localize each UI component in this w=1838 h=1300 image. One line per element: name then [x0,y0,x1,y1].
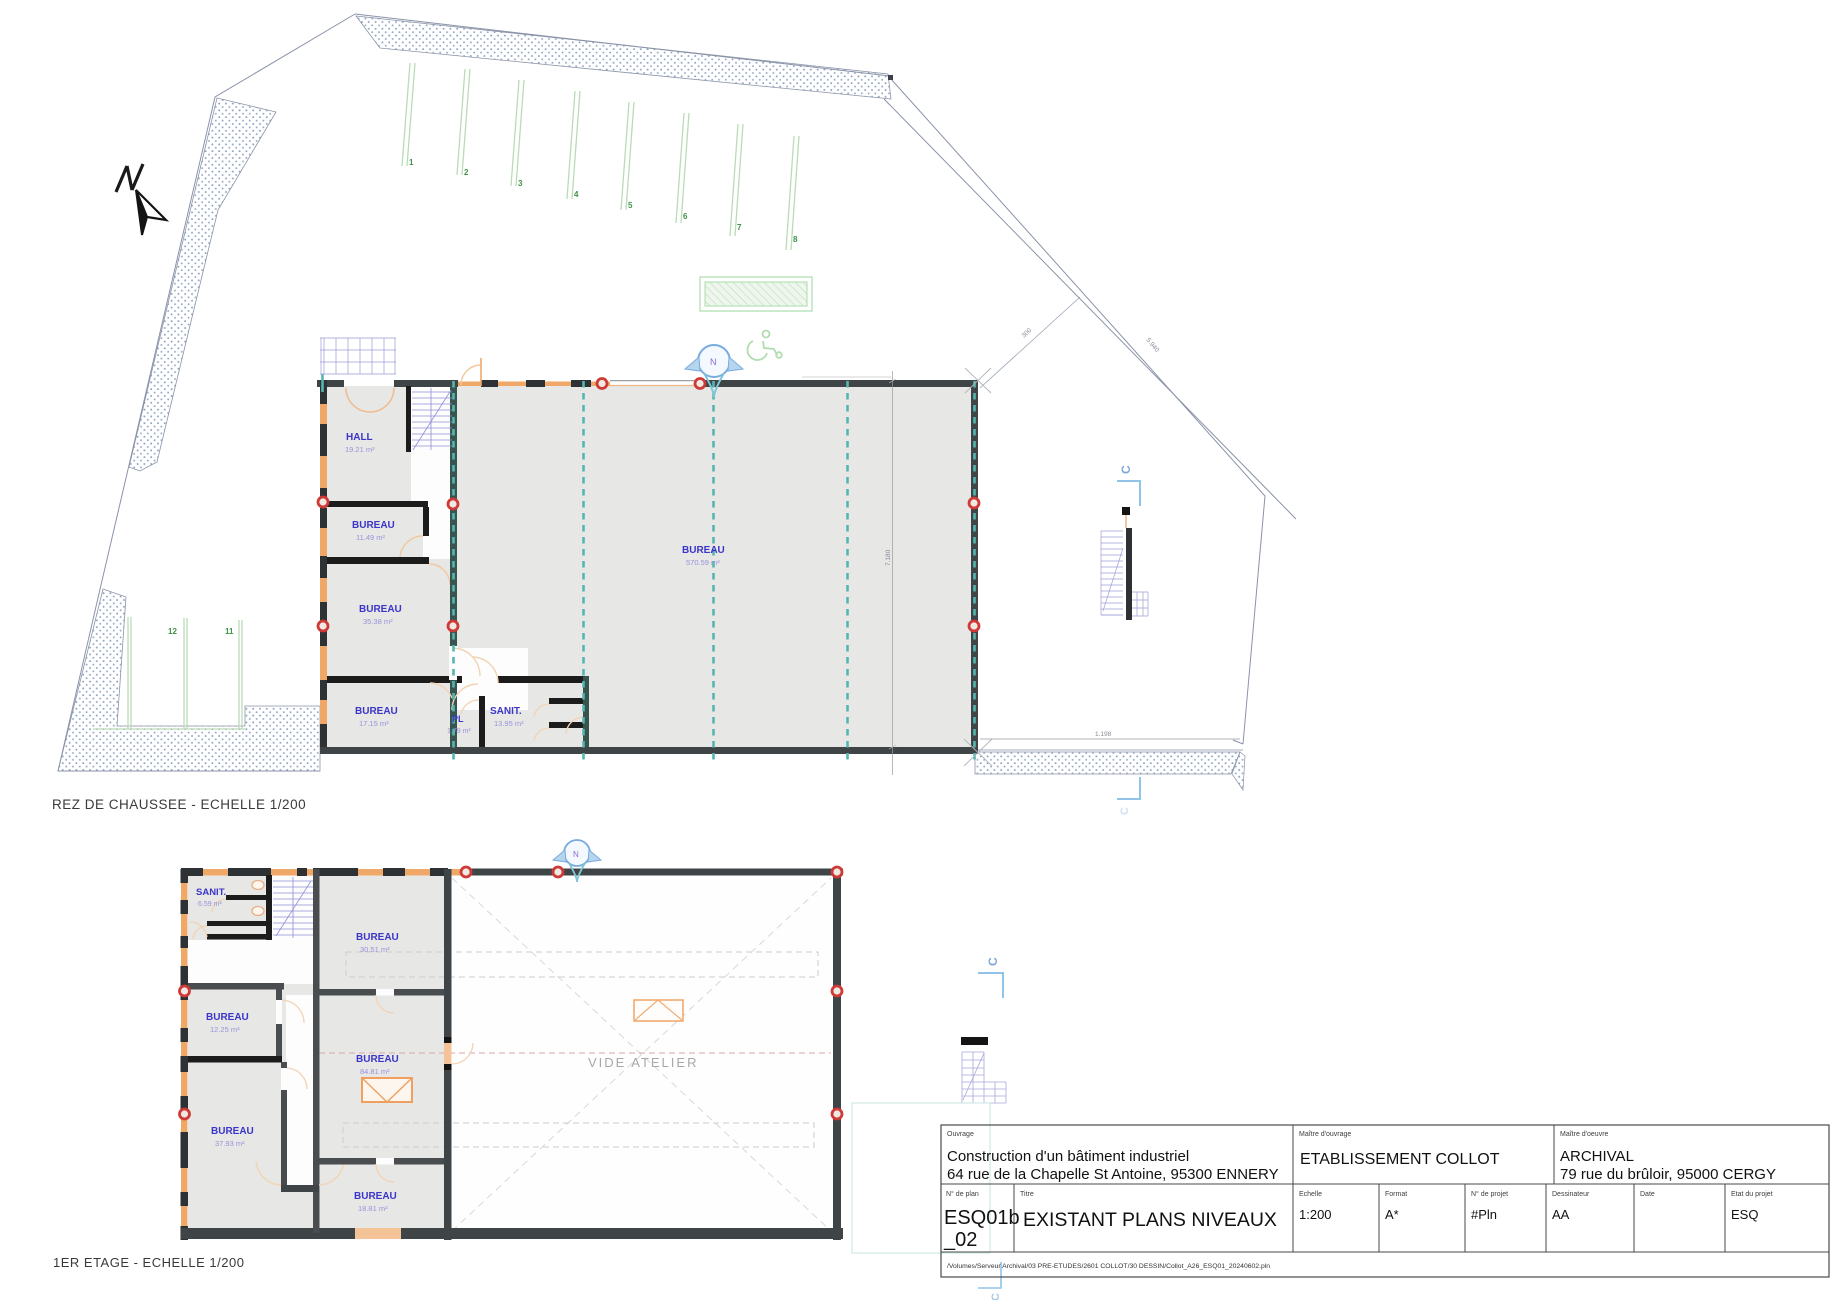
svg-text:17.15 m²: 17.15 m² [359,719,389,728]
svg-text:5.940: 5.940 [1144,337,1160,354]
svg-text:ESQ: ESQ [1731,1207,1758,1222]
svg-text:SANIT.: SANIT. [196,887,226,898]
svg-text:EXISTANT PLANS NIVEAUX: EXISTANT PLANS NIVEAUX [1023,1209,1277,1231]
svg-text:5: 5 [628,201,633,210]
svg-text:N° de plan: N° de plan [946,1190,979,1198]
svg-text:13.95 m²: 13.95 m² [494,719,524,728]
svg-text:6: 6 [683,212,688,221]
svg-text:BUREAU: BUREAU [682,545,725,556]
svg-text:#Pln: #Pln [1471,1207,1497,1222]
svg-text:BUREAU: BUREAU [359,604,402,615]
svg-text:BUREAU: BUREAU [206,1012,249,1023]
svg-text:30.51 m²: 30.51 m² [360,945,390,954]
svg-text:1.198: 1.198 [1095,731,1112,738]
svg-text:C: C [1119,807,1131,815]
svg-text:BUREAU: BUREAU [356,932,399,943]
svg-text:Maître d'ouvrage: Maître d'ouvrage [1299,1131,1351,1138]
svg-text:PL: PL [452,714,464,724]
svg-text:Echelle: Echelle [1299,1191,1322,1198]
svg-text:AA: AA [1552,1207,1570,1222]
svg-text:Etat du projet: Etat du projet [1731,1191,1773,1198]
svg-text:7: 7 [737,223,742,232]
svg-text:37.93 m²: 37.93 m² [215,1139,245,1148]
svg-text:ESQ01b: ESQ01b [944,1207,1020,1229]
svg-text:BUREAU: BUREAU [354,1191,397,1202]
svg-text:ETABLISSEMENT COLLOT: ETABLISSEMENT COLLOT [1300,1151,1500,1168]
svg-text:1ER ETAGE - ECHELLE 1/200: 1ER ETAGE - ECHELLE 1/200 [53,1255,244,1270]
svg-text:35.38 m²: 35.38 m² [363,617,393,626]
svg-text:C: C [990,1293,1002,1300]
svg-text:4: 4 [574,190,579,199]
svg-text:BUREAU: BUREAU [356,1054,399,1065]
svg-text:Titre: Titre [1020,1191,1034,1198]
svg-text:BUREAU: BUREAU [211,1126,254,1137]
svg-text:C: C [1119,465,1133,474]
svg-text:A*: A* [1385,1207,1399,1222]
svg-text:VIDE ATELIER: VIDE ATELIER [588,1055,698,1070]
svg-text:300: 300 [1021,327,1034,340]
svg-text:3: 3 [518,179,523,188]
svg-text:1:200: 1:200 [1299,1207,1332,1222]
svg-text:N: N [710,357,717,367]
svg-text:79 rue du brûloir, 95000 CERGY: 79 rue du brûloir, 95000 CERGY [1560,1166,1776,1183]
svg-text:Date: Date [1640,1191,1655,1198]
svg-text:64 rue de la Chapelle St Antoi: 64 rue de la Chapelle St Antoine, 95300 … [947,1166,1279,1183]
svg-text:Construction d'un bâtiment ind: Construction d'un bâtiment industriel [947,1148,1189,1165]
svg-text:1: 1 [409,158,414,167]
svg-text:Dessinateur: Dessinateur [1552,1191,1590,1198]
svg-text:SANIT.: SANIT. [490,706,522,717]
svg-text:C: C [986,957,1000,966]
svg-text:18.81 m²: 18.81 m² [358,1204,388,1213]
svg-text:12: 12 [168,627,177,636]
svg-text:HALL: HALL [346,432,373,443]
svg-text:12.25 m²: 12.25 m² [210,1025,240,1034]
svg-text:BUREAU: BUREAU [352,520,395,531]
svg-text:1.79 m²: 1.79 m² [447,728,471,735]
svg-text:Maître d'oeuvre: Maître d'oeuvre [1560,1131,1609,1138]
svg-text:BUREAU: BUREAU [355,706,398,717]
svg-text:11.49 m²: 11.49 m² [356,533,386,542]
svg-text:REZ DE CHAUSSEE - ECHELLE 1/20: REZ DE CHAUSSEE - ECHELLE 1/200 [52,797,306,812]
svg-text:84.81 m²: 84.81 m² [360,1067,390,1076]
svg-text:7.180: 7.180 [885,549,892,566]
svg-text:570.59 m²: 570.59 m² [686,558,720,567]
svg-text:_02: _02 [943,1229,977,1251]
svg-text:Format: Format [1385,1191,1407,1198]
svg-text:ARCHIVAL: ARCHIVAL [1560,1148,1634,1165]
svg-text:8: 8 [793,235,798,244]
svg-text:N° de projet: N° de projet [1471,1190,1508,1198]
svg-text:19.21 m²: 19.21 m² [345,445,375,454]
svg-text:Ouvrage: Ouvrage [947,1131,974,1138]
svg-text:/Volumes/Serveur Archival/03 P: /Volumes/Serveur Archival/03 PRE-ETUDES/… [947,1263,1270,1270]
svg-text:6.59 m²: 6.59 m² [198,901,222,908]
svg-text:11: 11 [225,627,234,636]
svg-text:N: N [573,850,579,859]
svg-text:2: 2 [464,168,469,177]
